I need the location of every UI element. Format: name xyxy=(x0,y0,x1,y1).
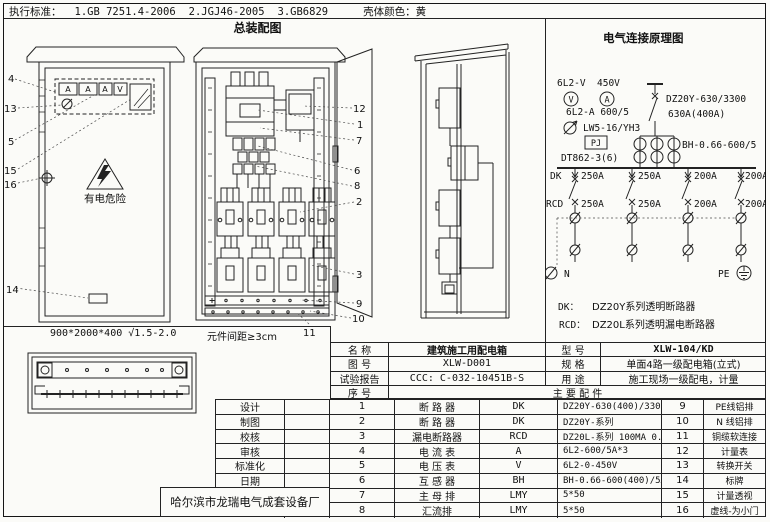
ammeter-letter: A xyxy=(604,96,609,106)
front-view-texts: A A A V 有电危险 4 13 5 15 16 14 xyxy=(4,74,126,296)
part-seq2: 15 xyxy=(662,489,704,504)
part-seq2: 12 xyxy=(662,444,704,459)
part-name: 电 流 表 xyxy=(395,444,480,459)
neutral-label: N xyxy=(564,269,570,280)
voltmeter-model-label: 6L2-V xyxy=(557,78,586,89)
energy-meter-label: DT862-3(6) xyxy=(561,153,618,164)
callout-14: 14 xyxy=(6,285,19,296)
callout-1: 1 xyxy=(357,120,363,131)
internal-view-callouts: 12 1 7 6 8 2 3 9 10 xyxy=(352,104,366,325)
part-seq2: 10 xyxy=(662,415,704,430)
part-seq: 5 xyxy=(330,459,395,474)
part-seq2: 9 xyxy=(662,400,704,415)
sig-audit-label: 审核 xyxy=(216,444,285,459)
part-seq2: 16 xyxy=(662,503,704,518)
sig-standard-label: 标准化 xyxy=(216,459,285,474)
part-code: V xyxy=(480,459,558,474)
part-spec: 6L2-600/5A*3 xyxy=(558,444,662,459)
part-seq: 3 xyxy=(330,430,395,445)
part-name: 汇流排 xyxy=(395,503,480,518)
model-value: XLW-104/KD xyxy=(601,343,766,357)
sig-draft-label: 制图 xyxy=(216,415,285,430)
ammeter-model-label: 6L2-A 600/5 xyxy=(566,107,629,118)
callout-10: 10 xyxy=(352,314,365,325)
sig-audit-value xyxy=(285,444,330,459)
meter-a3: A xyxy=(102,85,108,94)
cabinet-front-view xyxy=(15,47,184,322)
manufacturer-name: 哈尔滨市龙瑞电气成套设备厂 xyxy=(160,487,330,517)
standard-3: 3.GB6829 xyxy=(278,6,329,18)
part-code: A xyxy=(480,444,558,459)
test-report-label: 试验报告 xyxy=(331,372,389,386)
callout-5: 5 xyxy=(8,137,14,148)
part-spec: DZ20Y-系列 xyxy=(558,415,662,430)
standards-label: 执行标准： xyxy=(9,4,62,19)
branch4-rcd-rating: 200A xyxy=(745,199,766,210)
meter-box-label: PJ xyxy=(591,139,601,149)
callout-4: 4 xyxy=(8,74,14,85)
part-code: BH xyxy=(480,474,558,489)
legend-rcd-key: RCD： xyxy=(559,320,586,331)
part-name: 断 路 器 xyxy=(395,400,480,415)
warning-text: 有电危险 xyxy=(84,192,126,205)
callout-8: 8 xyxy=(354,181,360,192)
part-seq: 8 xyxy=(330,503,395,518)
switch-model-label: LW5-16/YH3 xyxy=(583,123,640,134)
drawing-bottom-line xyxy=(4,326,330,327)
part-seq: 2 xyxy=(330,415,395,430)
part-spec: BH-0.66-600(400)/5A xyxy=(558,474,662,489)
branch3-rcd-rating: 200A xyxy=(694,199,717,210)
use-value: 施工现场一级配电，计量 xyxy=(601,372,766,386)
sig-draft-value xyxy=(285,415,330,430)
shell-color-label: 壳体颜色：黄 xyxy=(363,4,426,19)
part-name2: 铜缆软连接 xyxy=(704,430,765,445)
metering-box xyxy=(286,90,314,130)
schematic-legend: DZ20Y系列透明断路器 DZ20L系列透明漏电断路器 xyxy=(592,300,715,331)
standard-1: 1.GB 7251.4-2006 xyxy=(75,6,176,18)
callout-3: 3 xyxy=(356,270,362,281)
branch2-rcd-rating: 250A xyxy=(638,199,661,210)
part-code: RCD xyxy=(480,430,558,445)
drawing-sheet: 执行标准： 1.GB 7251.4-2006 2.JGJ46-2005 3.GB… xyxy=(0,0,770,522)
part-seq2: 11 xyxy=(662,430,704,445)
part-name2: 标牌 xyxy=(704,474,765,489)
meter-a1: A xyxy=(65,85,71,94)
cabinet-side-view xyxy=(415,44,509,318)
cabinet-dimension: 900*2000*400 √1.5-2.0 xyxy=(50,328,176,339)
legend-dk-key: DK： xyxy=(558,302,579,313)
part-name: 断 路 器 xyxy=(395,415,480,430)
voltage-label: 450V xyxy=(597,78,620,89)
dk-label: DK xyxy=(550,171,562,182)
part-name2: 计量表 xyxy=(704,444,765,459)
callout-2: 2 xyxy=(356,197,362,208)
part-seq: 1 xyxy=(330,400,395,415)
part-spec: DZ20L-系列 100MA 0.2S xyxy=(558,430,662,445)
part-code: DK xyxy=(480,415,558,430)
spec-value: 单面4路一级配电箱(立式) xyxy=(601,357,766,371)
model-label: 型 号 xyxy=(546,343,601,357)
callout-15: 15 xyxy=(4,166,17,177)
part-spec: 5*50 xyxy=(558,503,662,518)
part-seq: 7 xyxy=(330,489,395,504)
callout-7: 7 xyxy=(356,136,362,147)
name-label: 名 称 xyxy=(331,343,389,357)
sig-check-label: 校核 xyxy=(216,430,285,445)
legend-rcd-desc: DZ20L系列透明漏电断路器 xyxy=(592,318,715,331)
cable-entry xyxy=(89,294,107,303)
legend-dk-desc: DZ20Y系列透明断路器 xyxy=(592,300,695,313)
pe-label: PE xyxy=(718,269,730,280)
part-name2: 虚线-为小门 xyxy=(704,503,765,518)
callout-6: 6 xyxy=(354,166,360,177)
part-name2: 计量透视 xyxy=(704,489,765,504)
branch2-breaker-rating: 250A xyxy=(638,171,661,182)
part-seq2: 13 xyxy=(662,459,704,474)
drawing-no-label: 图 号 xyxy=(331,357,389,371)
spacing-note: 元件间距≥3cm xyxy=(207,328,277,343)
part-name2: PE线铝排 xyxy=(704,400,765,415)
main-breaker xyxy=(226,86,274,136)
sig-standard-value xyxy=(285,459,330,474)
part-name: 电 压 表 xyxy=(395,459,480,474)
part-code: DK xyxy=(480,400,558,415)
test-report-value: CCC: C-032-10451B-S xyxy=(389,372,546,386)
branch-breakers-row1 xyxy=(217,188,335,248)
seq-header: 序 号 xyxy=(331,386,389,400)
standard-2: 2.JGJ46-2005 xyxy=(189,6,265,18)
spec-label: 规 格 xyxy=(546,357,601,371)
cabinet-internal-view xyxy=(194,48,372,320)
corner-line xyxy=(330,326,331,342)
part-code: LMY xyxy=(480,489,558,504)
part-name2: N 线铝排 xyxy=(704,415,765,430)
callout-16: 16 xyxy=(4,180,17,191)
branch3-breaker-rating: 200A xyxy=(694,171,717,182)
branch1-breaker-rating: 250A xyxy=(581,171,604,182)
branch1-rcd-rating: 250A xyxy=(581,199,604,210)
part-name: 主 母 排 xyxy=(395,489,480,504)
schematic-title: 电气连接原理图 xyxy=(603,31,684,45)
branch-circuits xyxy=(545,168,751,280)
part-spec: DZ20Y-630(400)/3300 xyxy=(558,400,662,415)
sig-design-label: 设计 xyxy=(216,400,285,415)
meter-a2: A xyxy=(85,85,91,94)
main-rating-label: 630A(400A) xyxy=(668,109,725,120)
callout-9: 9 xyxy=(356,299,362,310)
electrical-schematic: 电气连接原理图 xyxy=(545,18,766,342)
assembly-drawing: A A A V 有电危险 4 13 5 15 16 14 xyxy=(4,18,545,326)
voltmeter-letter: V xyxy=(568,96,573,106)
callout-11: 11 xyxy=(303,328,316,339)
terminal-bar-1 xyxy=(205,296,329,305)
branch4-breaker-rating: 200A xyxy=(745,171,766,182)
part-seq: 4 xyxy=(330,444,395,459)
sig-check-value xyxy=(285,430,330,445)
part-seq2: 14 xyxy=(662,474,704,489)
ct-model-label: BH-0.66-600/5 xyxy=(682,140,756,151)
title-block-table: 名 称 建筑施工用配电箱 型 号 XLW-104/KD 图 号 XLW-D001… xyxy=(330,342,766,399)
part-code: LMY xyxy=(480,503,558,518)
use-label: 用 途 xyxy=(546,372,601,386)
standards-header: 执行标准： 1.GB 7251.4-2006 2.JGJ46-2005 3.GB… xyxy=(9,4,549,19)
main-breaker-label: DZ20Y-630/3300 xyxy=(666,94,746,105)
part-spec: 6L2-0-450V xyxy=(558,459,662,474)
part-name2: 转换开关 xyxy=(704,459,765,474)
callout-13: 13 xyxy=(4,104,17,115)
sig-design-value xyxy=(285,400,330,415)
drawing-no-value: XLW-D001 xyxy=(389,357,546,371)
part-name: 互 感 器 xyxy=(395,474,480,489)
meter-v: V xyxy=(117,85,123,94)
terminal-bar-2 xyxy=(205,308,329,316)
schematic-labels: 6L2-V 450V V A 6L2-A 600/5 LW5-16/YH3 PJ… xyxy=(546,78,766,331)
main-parts-header: 主 要 配 件 xyxy=(389,386,766,400)
part-seq: 6 xyxy=(330,474,395,489)
rcd-label: RCD xyxy=(546,199,563,210)
product-name: 建筑施工用配电箱 xyxy=(389,343,546,357)
callout-12: 12 xyxy=(353,104,366,115)
part-name: 漏电断路器 xyxy=(395,430,480,445)
busbar-detail-view xyxy=(27,352,197,414)
part-spec: 5*50 xyxy=(558,489,662,504)
